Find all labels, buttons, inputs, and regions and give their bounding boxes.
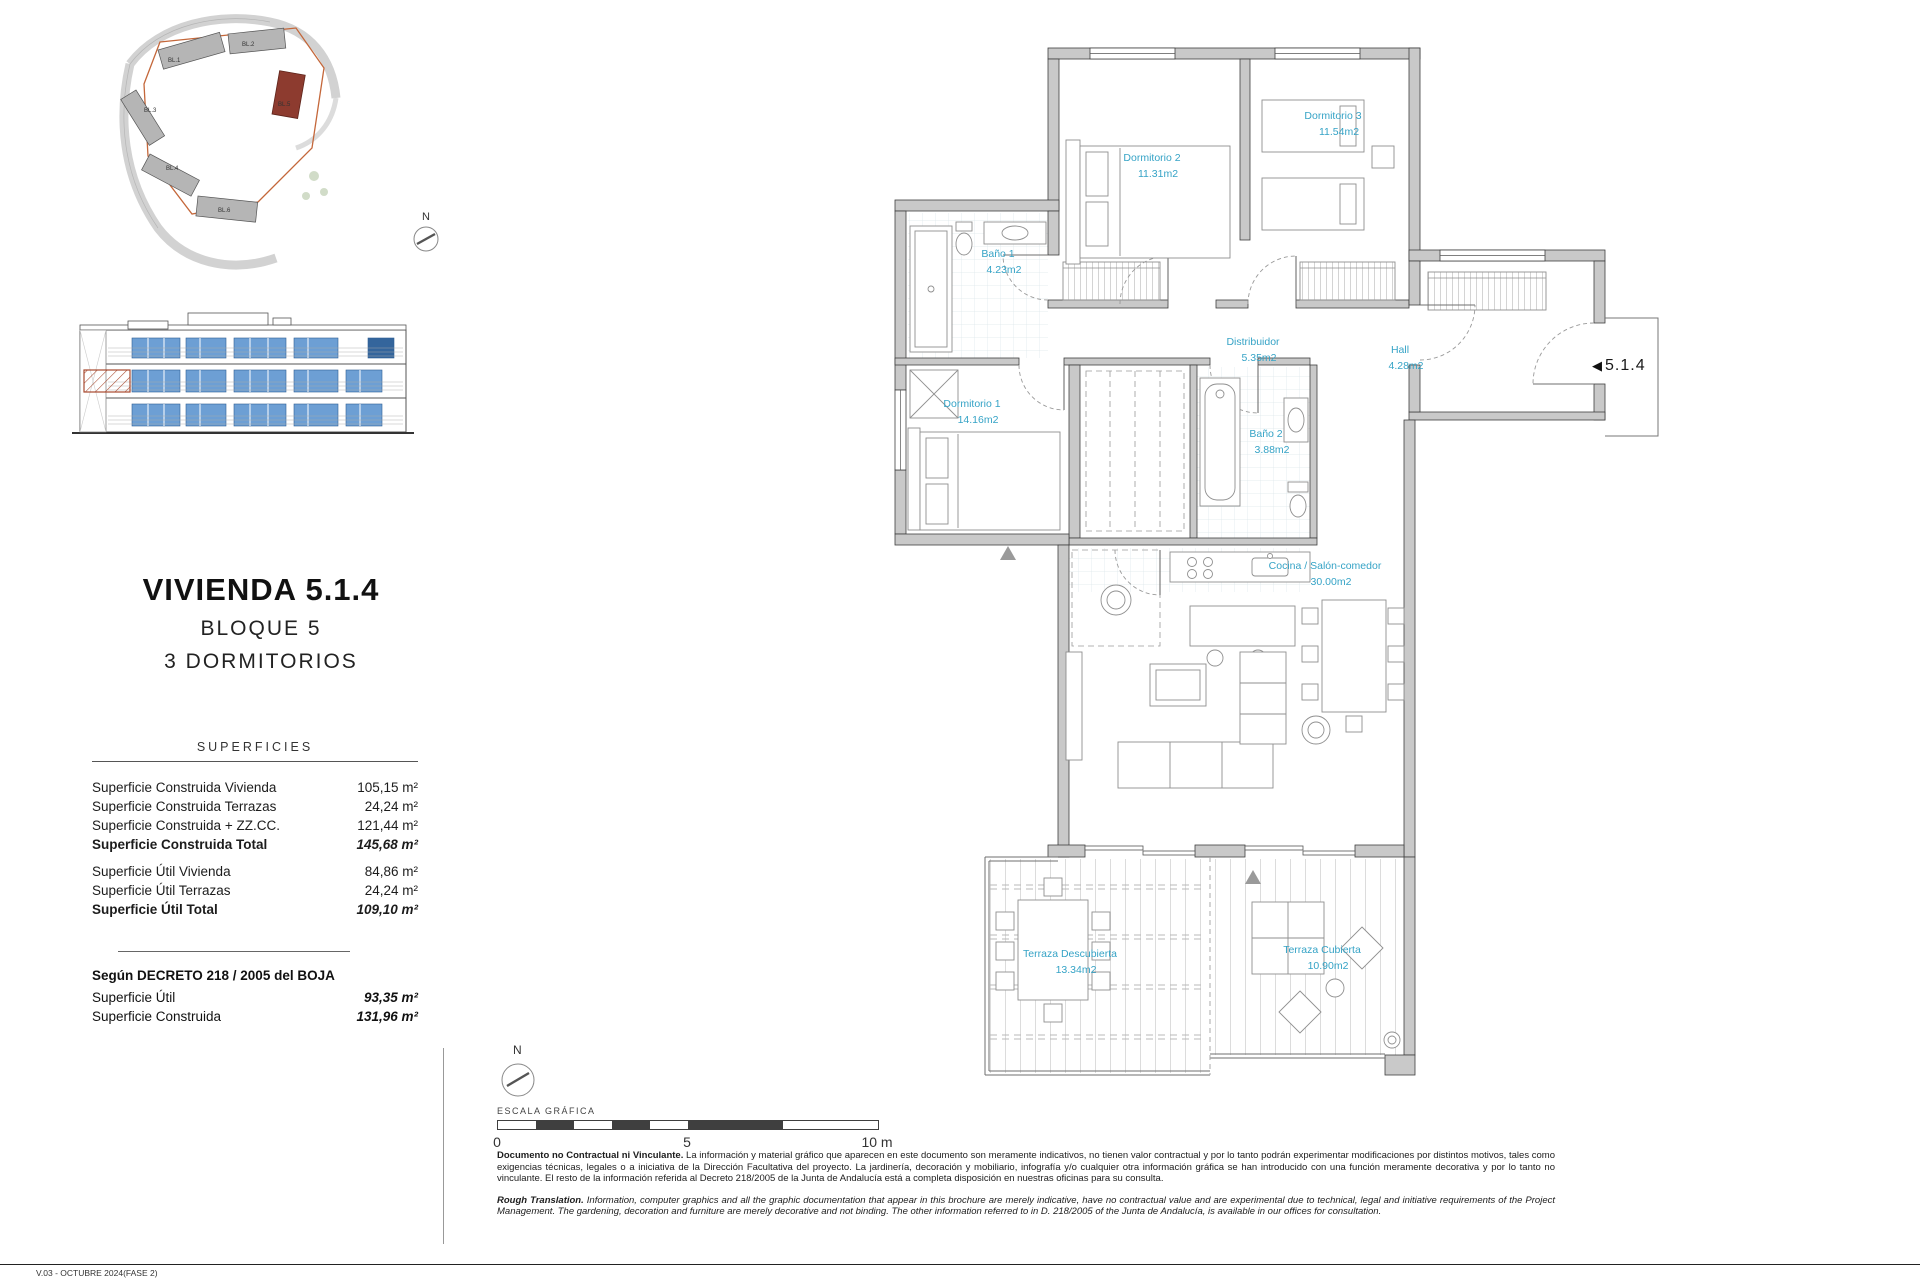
room-label-distribuidor: Distribuidor5.35m2 (1226, 334, 1279, 366)
landing-outline (1605, 318, 1658, 436)
scale-tick: 5 (683, 1134, 691, 1150)
room-label-bano-1: Baño 14.23m2 (974, 246, 1021, 278)
footer-rule (0, 1264, 1920, 1265)
floor-plan (0, 0, 1920, 1280)
divider (443, 1048, 444, 1244)
scale-tick: 10 m (861, 1134, 892, 1150)
disclaimer-block: Documento no Contractual ni Vinculante. … (497, 1150, 1555, 1218)
scale-tick: 0 (493, 1134, 501, 1150)
room-label-dormitorio-3: Dormitorio 311.54m2 (1304, 108, 1361, 140)
room-label-terraza-descubierta: Terraza Descubierta13.34m2 (1023, 946, 1117, 978)
room-label-dormitorio-2: Dormitorio 211.31m2 (1123, 150, 1180, 182)
room-label-cocina-salon: Cocina / Salón-comedor30.00m2 (1269, 558, 1382, 590)
scale-bar (497, 1120, 879, 1130)
brochure-page: BL.1 BL.2 BL.3 BL.4 BL.6 BL.5 N (0, 0, 1920, 1280)
unit-marker-label: 5.1.4 (1605, 357, 1646, 374)
unit-marker: ◀5.1.4 (1592, 357, 1646, 375)
room-label-hall: Hall4.28m2 (1376, 342, 1423, 374)
room-label-bano-2: Baño 23.88m2 (1242, 426, 1289, 458)
footer-version: V.03 - OCTUBRE 2024(FASE 2) (36, 1268, 158, 1278)
disclaimer-es: Documento no Contractual ni Vinculante. … (497, 1150, 1555, 1185)
left-arrow-icon: ◀ (1592, 358, 1603, 373)
scale-title: ESCALA GRÁFICA (497, 1106, 596, 1116)
room-label-terraza-cubierta: Terraza Cubierta10.90m2 (1283, 942, 1361, 974)
room-label-dormitorio-1: Dormitorio 114.16m2 (943, 396, 1000, 428)
disclaimer-en: Rough Translation. Information, computer… (497, 1195, 1555, 1218)
compass-letter: N (513, 1043, 522, 1057)
north-compass-scale-icon: N (492, 1040, 544, 1102)
